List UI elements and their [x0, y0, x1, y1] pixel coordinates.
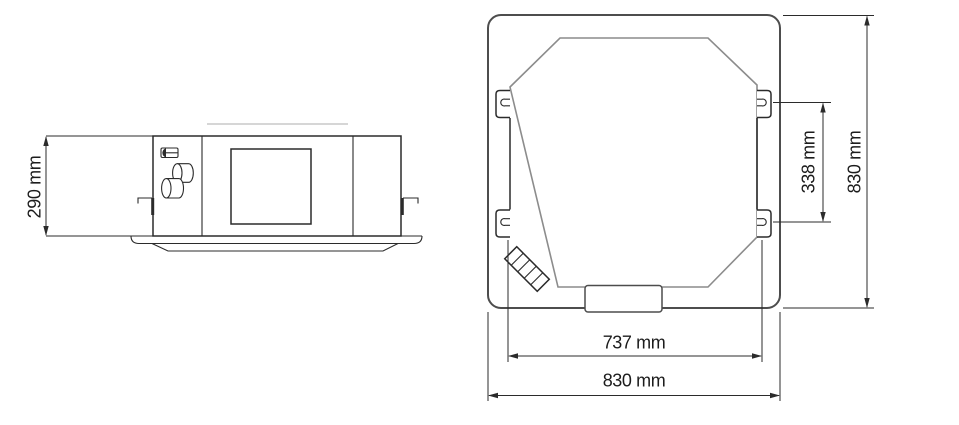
panel-profile — [131, 236, 422, 244]
arrow-down-icon — [864, 298, 869, 308]
unit-body-outline — [153, 136, 401, 236]
arrow-left-icon — [508, 353, 518, 358]
plan-view — [488, 15, 874, 401]
arrow-down-icon — [43, 226, 48, 236]
side-height-dim-label: 290 mm — [25, 156, 46, 219]
drain-pan-outlet — [585, 286, 662, 313]
arrow-up-icon — [820, 103, 825, 113]
hanger-bracket-bottom-right-icon — [757, 210, 771, 237]
hanger-bracket-bottom-left-icon — [496, 210, 510, 237]
arrow-right-icon — [770, 393, 780, 398]
arrow-up-icon — [864, 16, 869, 26]
hanger-hook-right-icon — [402, 198, 418, 215]
hanger-pitch-dim-label: 338 mm — [799, 131, 820, 194]
panel-width-dim-label: 830 mm — [603, 371, 666, 392]
panel-height-dim-label: 830 mm — [845, 131, 866, 194]
panel-outline — [488, 15, 780, 308]
arrow-left-icon — [488, 393, 498, 398]
piping-area-hatch-icon — [505, 247, 550, 292]
hanger-bracket-top-left-icon — [496, 91, 510, 118]
arrow-down-icon — [820, 212, 825, 222]
arrow-right-icon — [752, 353, 762, 358]
arrow-up-icon — [43, 136, 48, 146]
drain-connector-icon — [161, 148, 178, 158]
control-box-outline — [231, 149, 311, 224]
dimension-drawing-canvas: 290 mm 338 mm 830 mm 737 mm 830 mm — [0, 0, 959, 425]
panel-bezel-profile — [152, 244, 398, 252]
hanger-hook-left-icon — [138, 198, 153, 215]
side-view — [43, 124, 422, 251]
pipe-stub-lower-icon — [162, 179, 184, 198]
unit-body-octagon — [510, 38, 757, 287]
hanger-bracket-top-right-icon — [757, 91, 771, 118]
technical-linework — [0, 0, 959, 425]
body-width-dim-label: 737 mm — [603, 333, 666, 354]
